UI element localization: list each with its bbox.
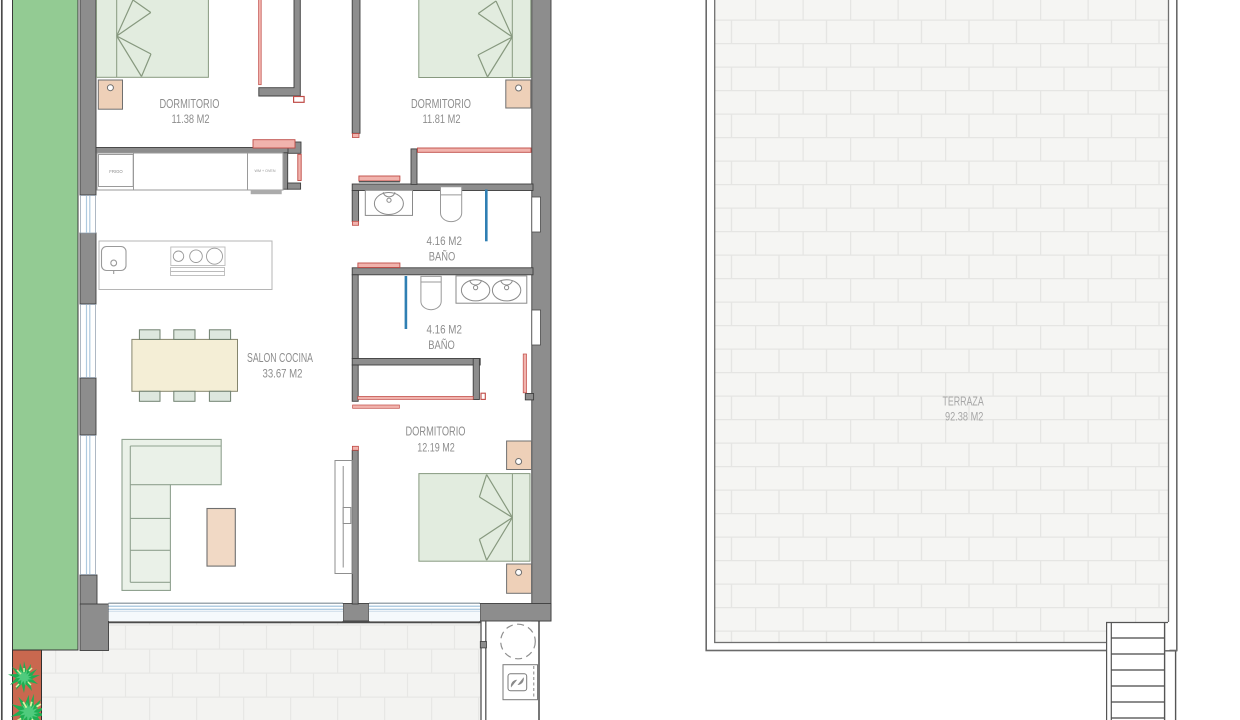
svg-text:TERRAZA: TERRAZA [942,394,984,409]
svg-text:WM + OVEN: WM + OVEN [255,168,276,173]
svg-text:12.19 M2: 12.19 M2 [417,440,455,454]
svg-text:DORMITORIO: DORMITORIO [160,96,220,111]
svg-text:DORMITORIO: DORMITORIO [411,96,471,111]
svg-text:4.16 M2: 4.16 M2 [427,323,462,337]
svg-text:SALON COCINA: SALON COCINA [247,350,313,365]
svg-text:BAÑO: BAÑO [428,338,455,352]
svg-text:92.38 M2: 92.38 M2 [945,410,984,424]
svg-text:33.67 M2: 33.67 M2 [263,367,303,381]
svg-text:BAÑO: BAÑO [429,250,456,264]
svg-text:FRIGO: FRIGO [109,169,123,174]
svg-text:4.16 M2: 4.16 M2 [427,234,462,248]
svg-text:11.38 M2: 11.38 M2 [172,112,210,126]
svg-text:11.81 M2: 11.81 M2 [423,112,461,126]
svg-text:DORMITORIO: DORMITORIO [406,423,466,438]
